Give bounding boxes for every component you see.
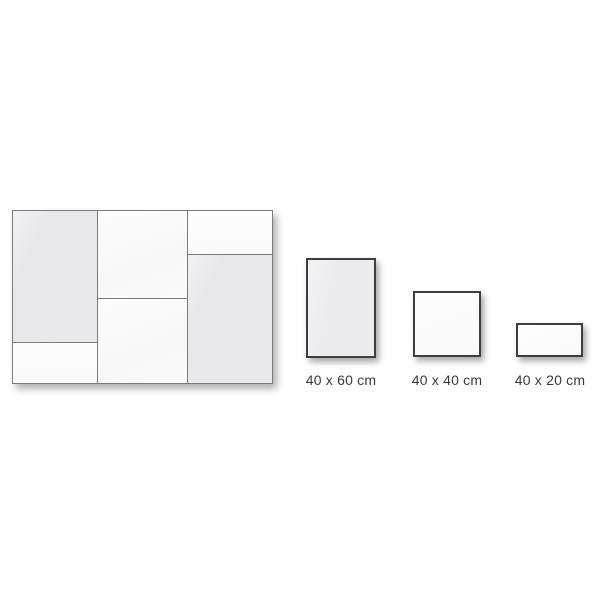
composite-panel-40x60-left-top (12, 210, 98, 343)
composite-panel-layout (12, 210, 273, 384)
size-swatch-40x60 (306, 258, 376, 358)
composite-panel-40x40-middle-top (97, 210, 188, 299)
composite-panel-40x20-left-bottom (12, 342, 98, 384)
size-swatch-40x20 (516, 323, 583, 357)
composite-panel-40x60-right-bottom (187, 254, 273, 384)
composite-panel-40x40-middle-bottom (97, 298, 188, 384)
size-label-40x20: 40 x 20 cm (480, 372, 600, 389)
composite-panel-40x20-right-top (187, 210, 273, 255)
size-swatch-40x40 (413, 291, 481, 357)
panel-size-diagram: 40 x 60 cm 40 x 40 cm 40 x 20 cm (0, 0, 600, 600)
